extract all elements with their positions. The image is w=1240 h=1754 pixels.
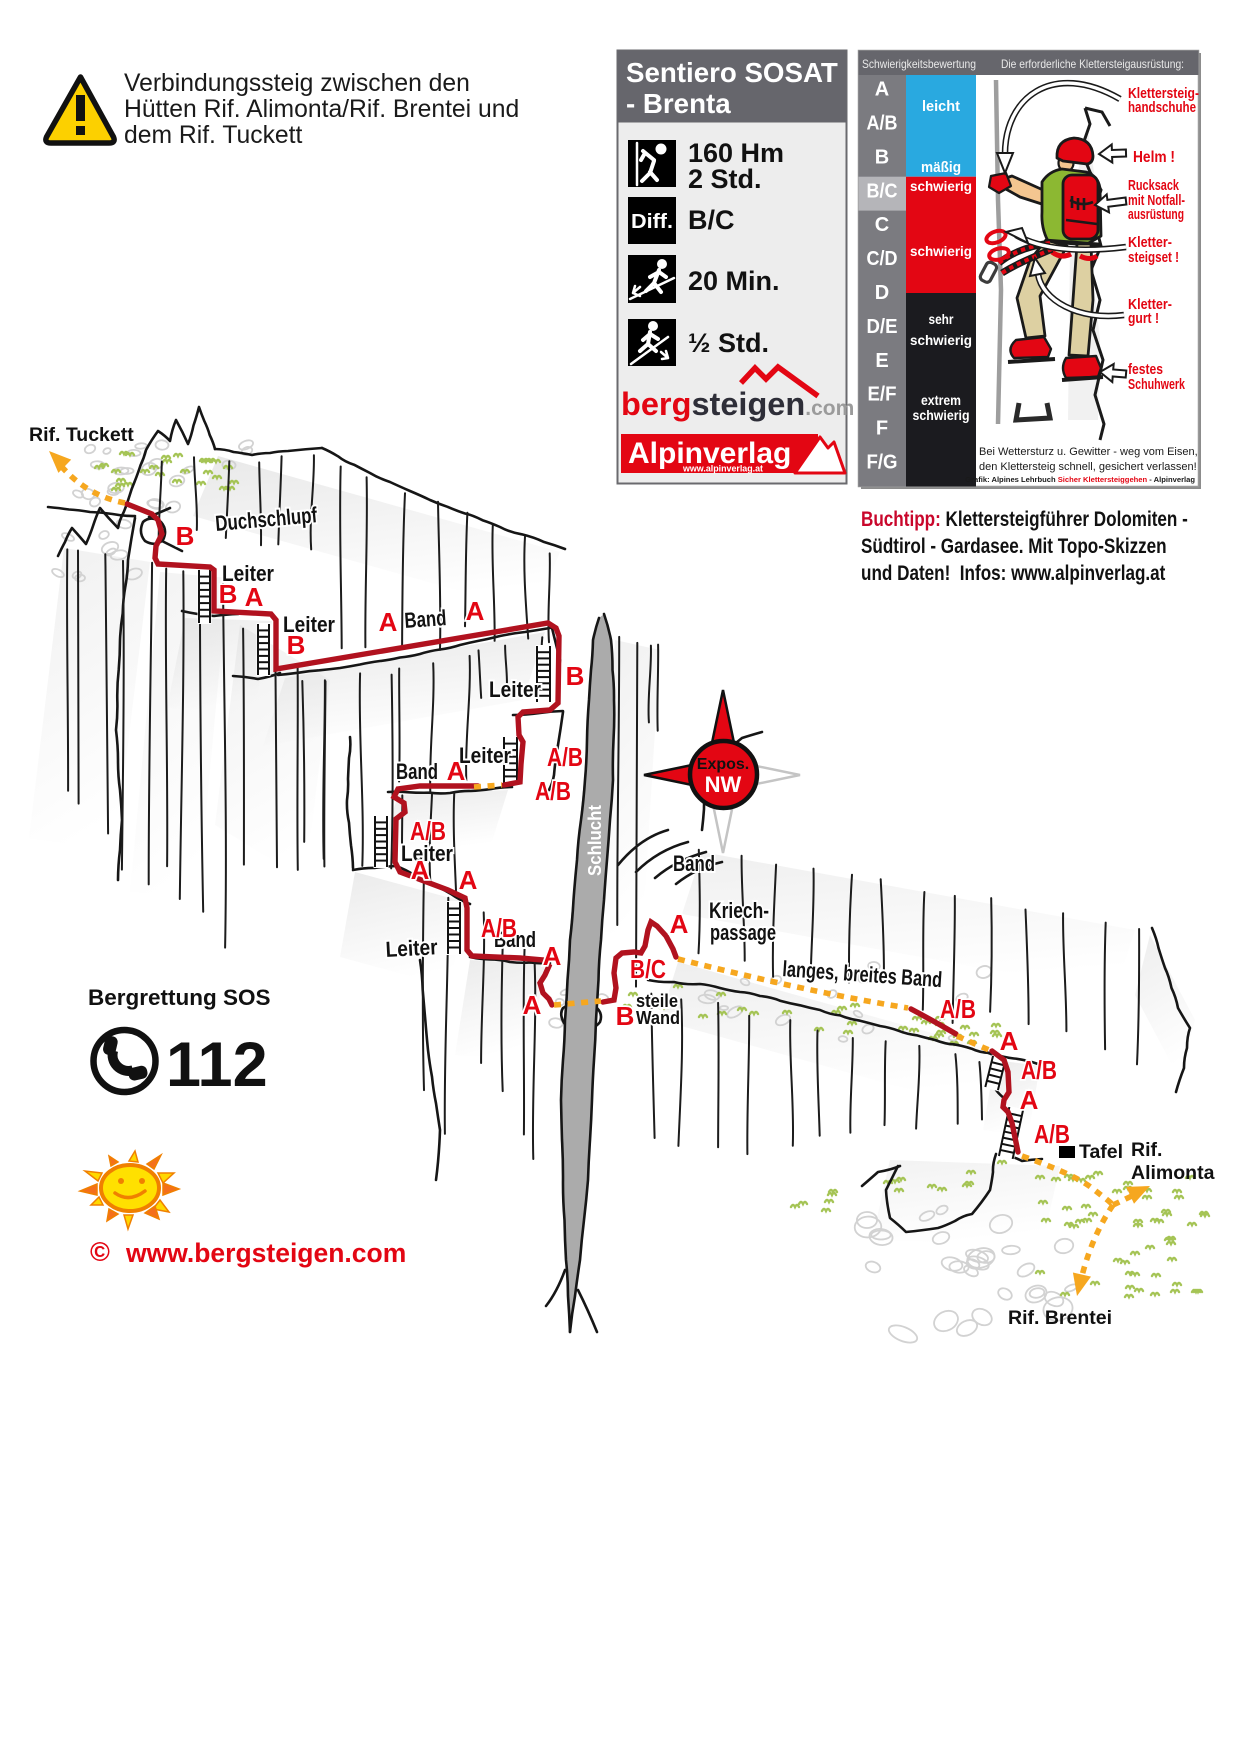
svg-text:B/C: B/C <box>630 954 666 984</box>
svg-text:schwierig: schwierig <box>913 408 970 423</box>
svg-text:www.alpinverlag.at: www.alpinverlag.at <box>682 464 763 474</box>
svg-text:A: A <box>875 79 889 101</box>
svg-text:A/B: A/B <box>940 994 976 1024</box>
svg-text:Leiter: Leiter <box>459 743 511 768</box>
svg-text:A: A <box>543 941 562 971</box>
svg-text:Sentiero SOSAT: Sentiero SOSAT <box>626 57 838 88</box>
svg-text:A/B: A/B <box>410 816 446 846</box>
svg-text:Expos.: Expos. <box>697 756 749 773</box>
svg-text:Rif.: Rif. <box>1131 1139 1162 1161</box>
svg-text:leicht: leicht <box>922 98 960 115</box>
svg-text:- Brenta: - Brenta <box>626 88 731 119</box>
svg-text:und Daten! Infos: www.alpinve: und Daten! Infos: www.alpinverlag.at <box>861 562 1166 585</box>
svg-text:schwierig: schwierig <box>910 332 972 348</box>
svg-text:A: A <box>245 582 264 612</box>
svg-text:dem Rif. Tuckett: dem Rif. Tuckett <box>124 122 302 149</box>
svg-text:B/C: B/C <box>867 180 898 202</box>
svg-text:2 Std.: 2 Std. <box>688 164 762 194</box>
svg-text:E: E <box>875 350 888 372</box>
svg-text:Schwierigkeitsbewertung: Schwierigkeitsbewertung <box>862 57 976 71</box>
svg-text:Band: Band <box>396 759 438 784</box>
svg-text:Rucksack: Rucksack <box>1128 178 1180 194</box>
svg-text:Schlucht: Schlucht <box>585 805 605 876</box>
svg-text:Hütten Rif. Alimonta/Rif. Bren: Hütten Rif. Alimonta/Rif. Brentei und <box>124 96 519 123</box>
svg-text:20 Min.: 20 Min. <box>688 266 780 296</box>
svg-text:festes: festes <box>1128 362 1163 378</box>
svg-text:NW: NW <box>705 772 742 797</box>
svg-text:A: A <box>379 607 398 637</box>
svg-text:A/B: A/B <box>1021 1055 1057 1085</box>
svg-text:Bei Wettersturz u. Gewitter -: Bei Wettersturz u. Gewitter - weg vom Ei… <box>979 446 1198 458</box>
svg-text:ausrüstung: ausrüstung <box>1128 207 1184 223</box>
svg-text:C/D: C/D <box>867 248 898 270</box>
svg-text:langes, breites Band: langes, breites Band <box>782 956 943 992</box>
svg-text:A: A <box>1000 1026 1019 1056</box>
svg-text:Rif. Brentei: Rif. Brentei <box>1008 1307 1112 1329</box>
svg-text:Wand: Wand <box>636 1008 680 1028</box>
svg-text:A/B: A/B <box>867 113 898 135</box>
svg-text:A/B: A/B <box>481 913 517 943</box>
svg-text:B: B <box>219 579 238 609</box>
svg-text:D/E: D/E <box>867 316 898 338</box>
svg-text:Tafel: Tafel <box>1079 1141 1123 1163</box>
svg-text:Buchtipp: Klettersteigführer D: Buchtipp: Klettersteigführer Dolomiten - <box>861 508 1188 531</box>
svg-text:Bergrettung SOS: Bergrettung SOS <box>88 985 271 1010</box>
svg-text:Kletter-: Kletter- <box>1128 235 1172 251</box>
svg-text:A: A <box>670 909 689 939</box>
svg-text:Alimonta: Alimonta <box>1131 1162 1215 1184</box>
svg-text:F/G: F/G <box>867 452 898 474</box>
svg-text:handschuhe: handschuhe <box>1128 100 1196 116</box>
svg-text:Rif. Tuckett: Rif. Tuckett <box>29 424 134 446</box>
svg-text:Helm !: Helm ! <box>1133 149 1175 166</box>
svg-text:C: C <box>875 214 889 236</box>
svg-text:112: 112 <box>166 1030 268 1100</box>
svg-text:A: A <box>459 865 478 895</box>
svg-text:Band: Band <box>673 851 715 876</box>
svg-text:A/B: A/B <box>535 776 571 806</box>
svg-text:extrem: extrem <box>921 393 961 408</box>
svg-text:steigset !: steigset ! <box>1128 250 1179 266</box>
svg-text:schwierig: schwierig <box>910 178 972 194</box>
svg-text:sehr: sehr <box>929 311 954 327</box>
svg-text:½ Std.: ½ Std. <box>688 328 769 358</box>
svg-text:Schuhwerk: Schuhwerk <box>1128 377 1186 393</box>
svg-text:www.bergsteigen.com: www.bergsteigen.com <box>125 1238 406 1268</box>
svg-text:Band: Band <box>404 605 448 633</box>
svg-text:Leiter: Leiter <box>489 677 541 702</box>
svg-text:B: B <box>287 630 306 660</box>
svg-text:A: A <box>447 756 466 786</box>
svg-text:den Klettersteig schnell, gesi: den Klettersteig schnell, gesichert verl… <box>979 461 1197 473</box>
svg-text:E/F: E/F <box>868 384 897 406</box>
svg-text:Grafik: Alpines Lehrbuch Siche: Grafik: Alpines Lehrbuch Sicher Kletters… <box>965 475 1195 484</box>
svg-text:Leiter: Leiter <box>385 934 439 962</box>
svg-text:schwierig: schwierig <box>910 243 972 259</box>
svg-text:gurt !: gurt ! <box>1128 311 1159 327</box>
svg-text:A: A <box>1020 1085 1039 1115</box>
svg-text:A: A <box>411 855 430 885</box>
svg-text:D: D <box>875 282 889 304</box>
svg-text:B/C: B/C <box>688 205 735 235</box>
svg-text:B: B <box>875 146 889 168</box>
svg-text:B: B <box>616 1001 635 1031</box>
svg-text:A: A <box>466 596 485 626</box>
svg-text:F: F <box>876 418 888 440</box>
svg-text:A: A <box>523 990 542 1020</box>
svg-text:A/B: A/B <box>547 742 583 772</box>
svg-text:A/B: A/B <box>1034 1119 1070 1149</box>
svg-text:passage: passage <box>710 920 776 945</box>
svg-text:mäßig: mäßig <box>921 159 961 176</box>
svg-text:©: © <box>90 1237 110 1267</box>
svg-text:Diff.: Diff. <box>631 211 673 233</box>
svg-text:Verbindungssteig zwischen den: Verbindungssteig zwischen den <box>124 70 470 97</box>
svg-text:B: B <box>176 521 195 551</box>
svg-text:Die erforderliche Klettersteig: Die erforderliche Klettersteigausrüstung… <box>1001 57 1184 71</box>
svg-text:B: B <box>566 661 585 691</box>
svg-text:Südtirol - Gardasee. Mit Topo-: Südtirol - Gardasee. Mit Topo-Skizzen <box>861 535 1167 558</box>
